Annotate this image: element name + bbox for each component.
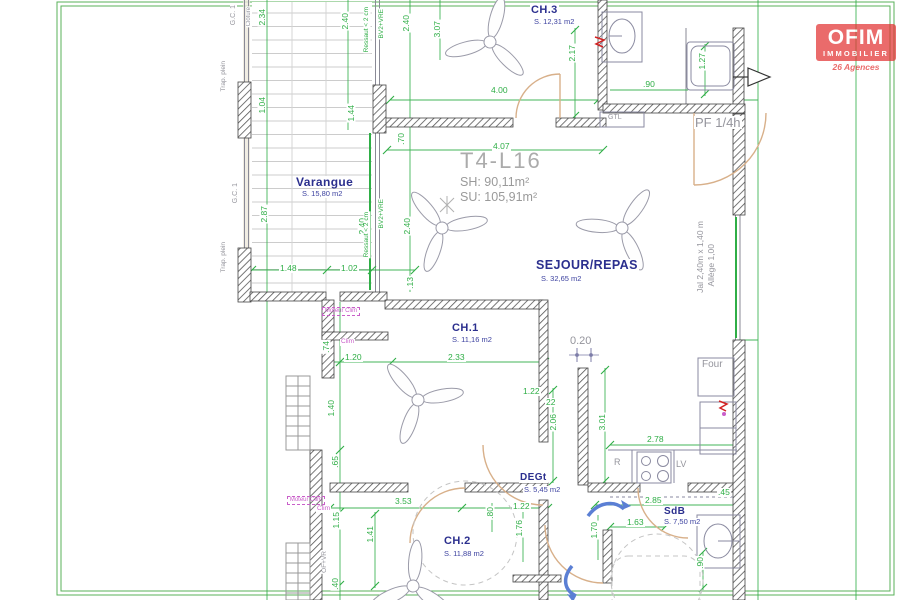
page-border <box>57 2 894 595</box>
floorplan-page: CH.3S. 12,31 m2VarangueS. 15,80 m2SEJOUR… <box>0 0 900 600</box>
plan-su-area: SU: 105,91m² <box>460 190 542 204</box>
ofim-sub-text: IMMOBILIER <box>816 49 896 58</box>
plan-type-label: T4-L16 <box>460 148 542 174</box>
plan-sh-area: SH: 90,11m² <box>460 175 542 189</box>
plan-title-block: T4-L16 SH: 90,11m² SU: 105,91m² <box>460 148 542 204</box>
ofim-brand-text: OFIM <box>816 27 896 48</box>
wall-width-marker <box>569 348 599 362</box>
varangue-decking <box>243 0 372 292</box>
oven-column <box>698 358 736 454</box>
floorplan-canvas <box>0 0 900 600</box>
ofim-logo-box: OFIM IMMOBILIER <box>816 24 896 61</box>
ofim-tagline-text: 26 Agences <box>816 62 896 72</box>
light-symbol <box>440 196 454 214</box>
ofim-logo: OFIM IMMOBILIER 26 Agences <box>816 24 896 72</box>
louver-windows <box>286 376 310 600</box>
